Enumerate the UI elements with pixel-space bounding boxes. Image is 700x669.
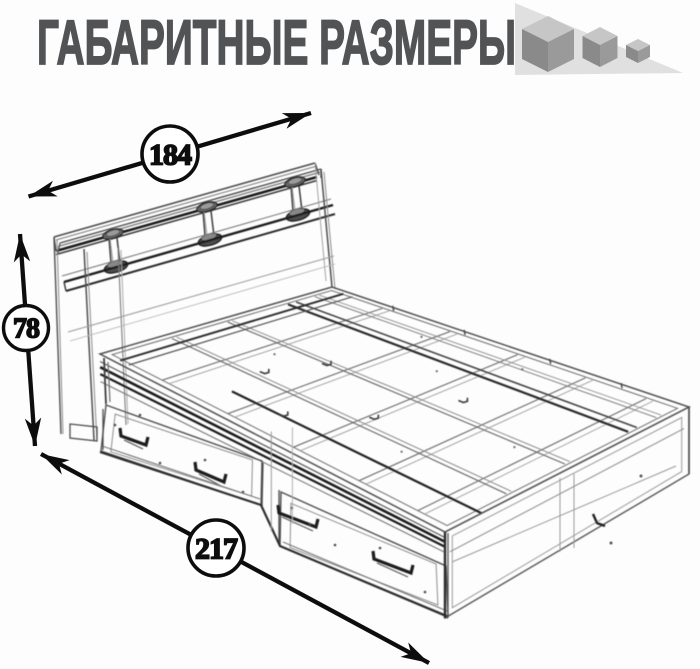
svg-text:184: 184 [149,139,192,172]
svg-text:78: 78 [13,314,40,345]
svg-text:ГАБАРИТНЫЕ РАЗМЕРЫ: ГАБАРИТНЫЕ РАЗМЕРЫ [37,8,516,78]
svg-text:217: 217 [195,533,238,566]
